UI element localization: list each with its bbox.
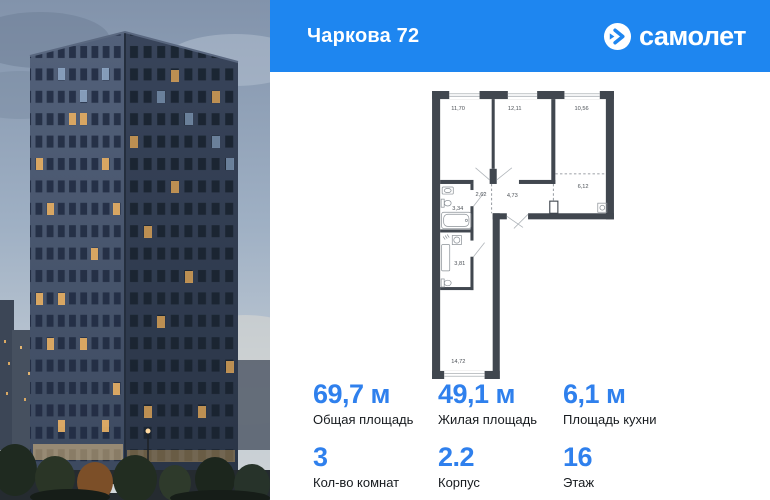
- room-area-hall: 2,62: [476, 192, 487, 198]
- floorplan-windows: [444, 91, 600, 379]
- building-photo: [0, 0, 270, 500]
- room-area-bedroom-2: 12,11: [508, 106, 522, 112]
- stat-kitchen-area: 6,1 м Площадь кухни: [563, 379, 685, 427]
- stat-total-area-label: Общая площадь: [313, 412, 435, 427]
- stat-rooms-label: Кол-во комнат: [313, 475, 435, 490]
- stat-kitchen-area-value: 6,1 м: [563, 379, 685, 409]
- stat-rooms: 3 Кол-во комнат: [313, 442, 435, 490]
- stat-building-value: 2.2: [438, 442, 560, 472]
- samolet-logo-text: самолет: [639, 21, 746, 52]
- stat-living-area-label: Жилая площадь: [438, 412, 560, 427]
- room-area-corridor: 4,73: [507, 193, 518, 199]
- room-area-bedroom-3: 10,56: [575, 106, 589, 112]
- listing-card: Чаркова 72 самолет: [0, 0, 770, 500]
- stat-floor-value: 16: [563, 442, 685, 472]
- stat-kitchen-area-label: Площадь кухни: [563, 412, 685, 427]
- project-title: Чаркова 72: [307, 25, 419, 48]
- floorplan-fixtures: [441, 187, 607, 287]
- stat-total-area: 69,7 м Общая площадь: [313, 379, 435, 427]
- stat-living-area: 49,1 м Жилая площадь: [438, 379, 560, 427]
- stat-floor-label: Этаж: [563, 475, 685, 490]
- info-panel: Чаркова 72 самолет: [270, 0, 770, 500]
- floorplan-walls: [432, 91, 614, 379]
- main-tower: [30, 32, 238, 470]
- stat-total-area-value: 69,7 м: [313, 379, 435, 409]
- samolet-logo[interactable]: самолет: [603, 21, 746, 52]
- samolet-arrow-icon: [603, 22, 632, 51]
- floorplan: 11,70 12,11 10,56 2,62 4,73 3,34 6,12 3,…: [432, 91, 614, 379]
- stat-building-label: Корпус: [438, 475, 560, 490]
- stat-building: 2.2 Корпус: [438, 442, 560, 490]
- room-area-living: 14,72: [451, 359, 465, 365]
- room-area-bedroom-1: 11,70: [451, 106, 465, 112]
- stat-living-area-value: 49,1 м: [438, 379, 560, 409]
- stat-floor: 16 Этаж: [563, 442, 685, 490]
- stat-rooms-value: 3: [313, 442, 435, 472]
- room-area-bathroom-1: 3,34: [452, 206, 463, 212]
- room-area-bathroom-2: 3,81: [454, 261, 465, 267]
- header: Чаркова 72 самолет: [270, 0, 770, 72]
- room-area-kitchen: 6,12: [578, 184, 589, 190]
